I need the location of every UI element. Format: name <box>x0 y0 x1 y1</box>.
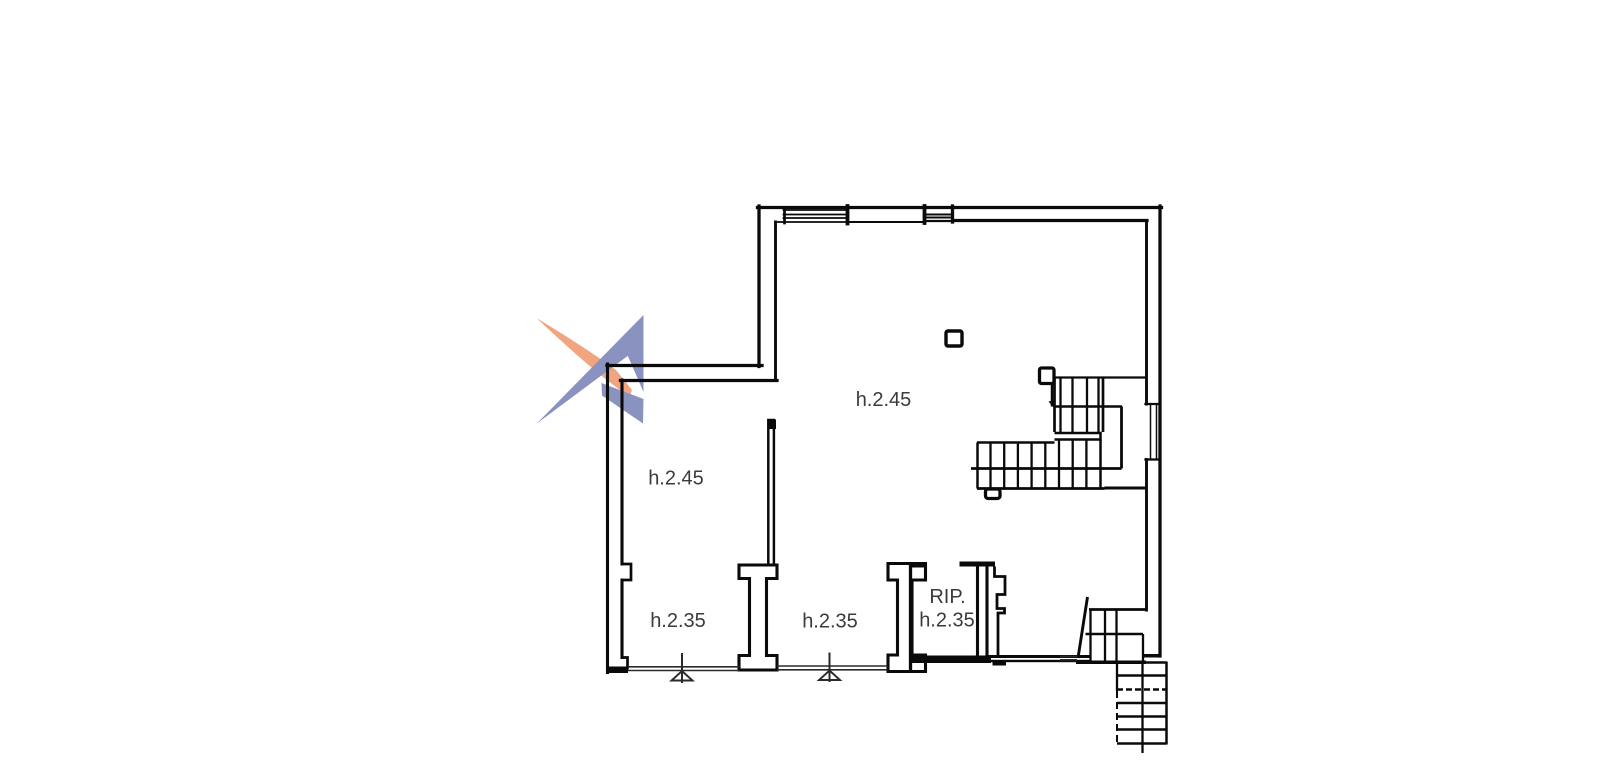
svg-text:h.2.35: h.2.35 <box>919 610 975 632</box>
svg-text:h.2.45: h.2.45 <box>856 389 912 411</box>
svg-text:RIP.: RIP. <box>929 586 965 608</box>
svg-text:h.2.35: h.2.35 <box>650 610 706 632</box>
svg-text:h.2.35: h.2.35 <box>802 611 858 633</box>
svg-text:h.2.45: h.2.45 <box>648 468 704 490</box>
